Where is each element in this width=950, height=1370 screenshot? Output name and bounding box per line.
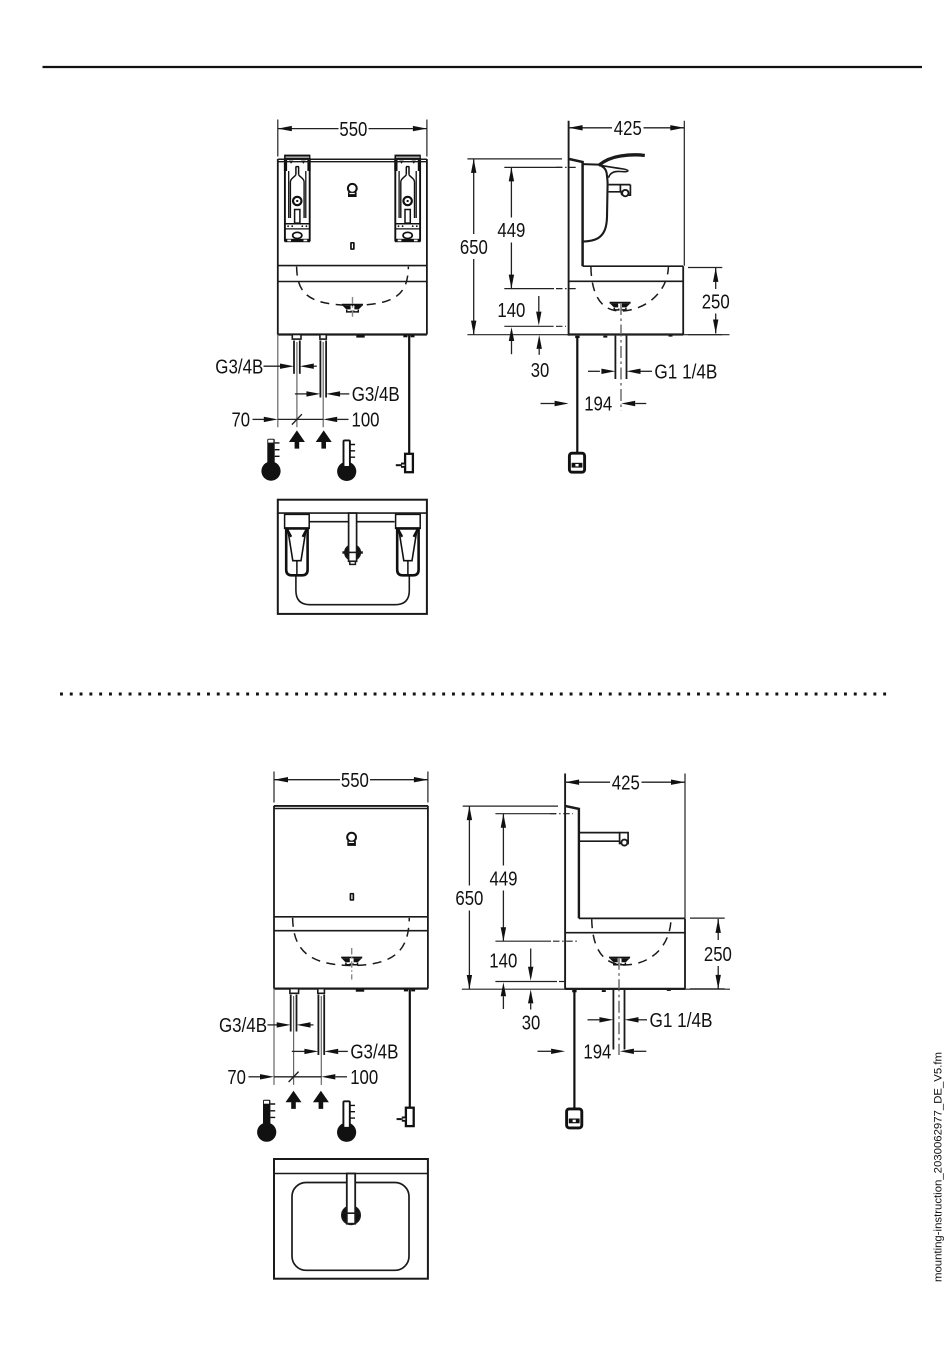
svg-text:449: 449: [490, 868, 518, 890]
svg-text:30: 30: [531, 360, 550, 382]
svg-text:650: 650: [460, 237, 488, 259]
svg-text:140: 140: [497, 300, 525, 322]
svg-text:550: 550: [339, 119, 367, 141]
svg-text:650: 650: [455, 888, 483, 910]
svg-text:G1 1/4B: G1 1/4B: [654, 362, 717, 384]
svg-text:G1 1/4B: G1 1/4B: [650, 1010, 713, 1032]
svg-text:425: 425: [614, 118, 642, 140]
svg-text:G3/4B: G3/4B: [350, 1042, 398, 1064]
svg-text:449: 449: [497, 220, 525, 242]
svg-text:70: 70: [227, 1067, 246, 1089]
svg-text:250: 250: [704, 944, 732, 966]
svg-text:G3/4B: G3/4B: [219, 1015, 267, 1037]
svg-text:194: 194: [583, 1042, 611, 1064]
svg-text:70: 70: [232, 410, 251, 432]
svg-text:140: 140: [489, 950, 517, 972]
svg-text:194: 194: [584, 394, 612, 416]
svg-text:G3/4B: G3/4B: [352, 384, 400, 406]
svg-text:100: 100: [350, 1067, 378, 1089]
svg-text:550: 550: [341, 770, 369, 792]
svg-text:425: 425: [612, 772, 640, 794]
svg-text:100: 100: [352, 410, 380, 432]
svg-text:30: 30: [522, 1012, 541, 1034]
svg-text:mounting-instruction_203006297: mounting-instruction_2030062977_DE_V5.fm: [933, 1052, 945, 1282]
svg-text:G3/4B: G3/4B: [215, 356, 263, 378]
svg-text:250: 250: [702, 292, 730, 314]
